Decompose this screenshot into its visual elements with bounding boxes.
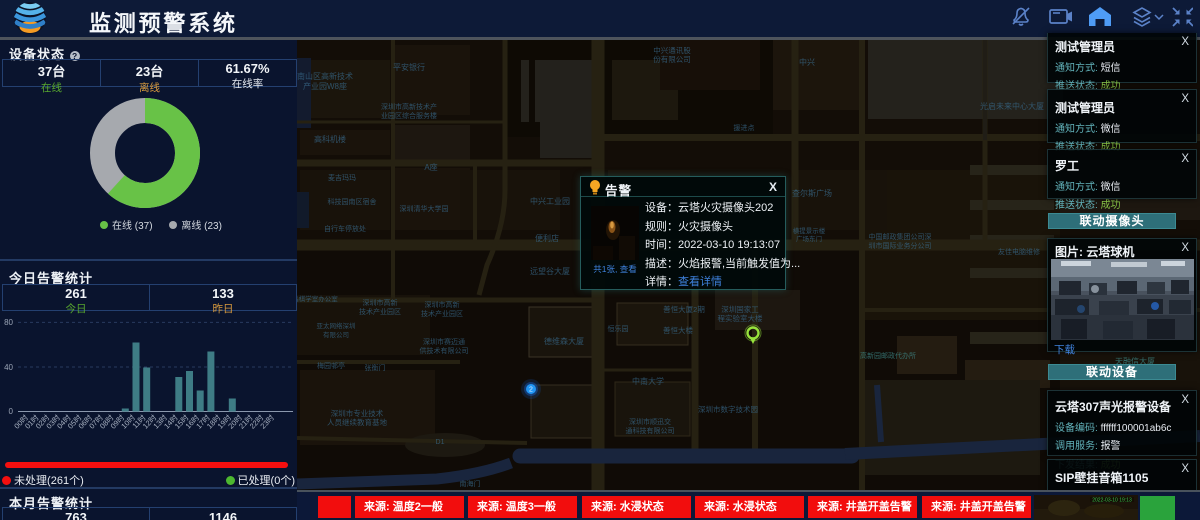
svg-text:科技园南区宿舍: 科技园南区宿舍 <box>328 197 377 206</box>
svg-text:程实验室大楼: 程实验室大楼 <box>718 313 763 323</box>
svg-text:晶棋学室办公室: 晶棋学室办公室 <box>297 294 338 303</box>
svg-text:业园区综合服务楼: 业园区综合服务楼 <box>381 111 437 120</box>
svg-text:深圳市数字技术园: 深圳市数字技术园 <box>698 404 758 414</box>
svg-text:南海门: 南海门 <box>460 479 481 488</box>
svg-text:0: 0 <box>9 407 14 416</box>
svg-text:通科技有限公司: 通科技有限公司 <box>626 426 675 435</box>
svg-text:光启未来中心大厦: 光启未来中心大厦 <box>980 101 1044 111</box>
svg-text:人员继续教育基地: 人员继续教育基地 <box>327 417 387 427</box>
svg-text:恒乐园: 恒乐园 <box>608 324 629 333</box>
svg-text:自行车停放处: 自行车停放处 <box>324 224 366 233</box>
svg-text:高科机楼: 高科机楼 <box>314 134 346 144</box>
svg-text:2022-03-10 19:13: 2022-03-10 19:13 <box>1092 497 1132 503</box>
svg-text:查尔斯广场: 查尔斯广场 <box>792 188 832 198</box>
svg-text:中国邮政集团公司深: 中国邮政集团公司深 <box>869 232 932 241</box>
svg-text:40: 40 <box>4 363 13 372</box>
svg-text:80: 80 <box>4 318 13 327</box>
svg-text:援进点: 援进点 <box>734 123 755 132</box>
svg-text:技术产业园区: 技术产业园区 <box>421 309 463 318</box>
svg-text:善恒大楼: 善恒大楼 <box>663 325 693 335</box>
svg-text:深圳市高新: 深圳市高新 <box>363 298 398 307</box>
svg-text:麦吉玛玛: 麦吉玛玛 <box>328 173 356 182</box>
svg-text:深圳市赛迈通: 深圳市赛迈通 <box>423 337 465 346</box>
svg-text:有限公司: 有限公司 <box>323 330 349 339</box>
svg-text:深圳市高新技术产: 深圳市高新技术产 <box>381 102 437 111</box>
svg-text:平安银行: 平安银行 <box>393 62 425 72</box>
svg-text:圳市国际业务分公司: 圳市国际业务分公司 <box>869 241 932 250</box>
svg-text:深圳市高新: 深圳市高新 <box>425 300 460 309</box>
svg-text:深圳清华大学园: 深圳清华大学园 <box>400 204 449 213</box>
svg-text:南山区高新技术: 南山区高新技术 <box>297 71 353 81</box>
svg-text:深圳市顺迅交: 深圳市顺迅交 <box>629 417 671 426</box>
svg-text:善恒大厦2期: 善恒大厦2期 <box>663 304 705 314</box>
svg-text:A座: A座 <box>424 162 437 172</box>
svg-text:中兴通讯股: 中兴通讯股 <box>653 45 691 55</box>
svg-text:技术产业园区: 技术产业园区 <box>359 307 401 316</box>
svg-text:张衡门: 张衡门 <box>365 363 386 372</box>
svg-text:远望谷大厦: 远望谷大厦 <box>530 266 570 276</box>
svg-text:中兴工业园: 中兴工业园 <box>530 196 570 206</box>
svg-text:产业园W8座: 产业园W8座 <box>303 81 347 91</box>
svg-text:高新园邮政代办所: 高新园邮政代办所 <box>860 351 916 360</box>
svg-text:便利店: 便利店 <box>535 233 559 243</box>
svg-text:深圳市专业技术: 深圳市专业技术 <box>331 408 384 418</box>
svg-text:供技术有限公司: 供技术有限公司 <box>420 346 469 355</box>
svg-text:中兴: 中兴 <box>799 57 815 67</box>
svg-text:D1: D1 <box>436 439 445 446</box>
svg-text:份有限公司: 份有限公司 <box>653 54 691 64</box>
svg-text:中南大学: 中南大学 <box>632 376 664 386</box>
svg-text:亚太网络深圳: 亚太网络深圳 <box>317 321 356 330</box>
svg-text:德维森大厦: 德维森大厦 <box>544 336 584 346</box>
svg-text:友佳电脑维修: 友佳电脑维修 <box>998 247 1040 256</box>
svg-text:梅园邨亭: 梅园邨亭 <box>317 361 345 370</box>
svg-text:2: 2 <box>529 387 533 394</box>
svg-text:深圳国家工: 深圳国家工 <box>721 304 759 314</box>
